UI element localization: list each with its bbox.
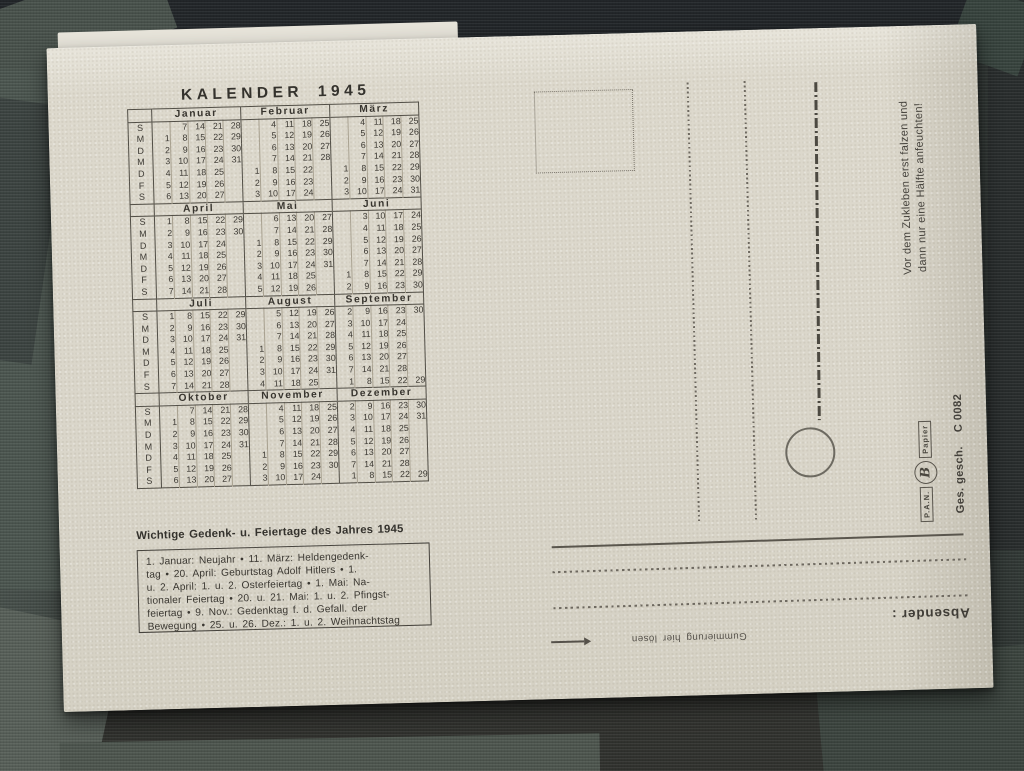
registration-note: Ges. gesch. C 0082 <box>942 390 977 517</box>
date-cell: 9 <box>262 248 280 260</box>
date-cell <box>159 405 177 418</box>
date-cell: 28 <box>223 119 241 132</box>
date-cell: 19 <box>194 357 212 369</box>
fold-dash-dot-line <box>814 82 820 420</box>
date-cell: 13 <box>179 475 197 488</box>
date-cell: 30 <box>403 173 421 185</box>
date-cell: 28 <box>315 224 333 236</box>
date-cell: 11 <box>263 272 281 284</box>
date-cell: 1 <box>334 270 352 282</box>
vertical-dotted-line <box>744 81 757 521</box>
date-cell: 15 <box>280 236 298 248</box>
date-cell <box>232 474 250 487</box>
calendar-title: KALENDER 1945 <box>166 81 386 105</box>
weekday-letter: D <box>129 145 153 157</box>
date-cell: 11 <box>171 168 189 180</box>
date-cell: 29 <box>315 235 333 247</box>
date-cell: 4 <box>158 346 176 358</box>
date-cell: 17 <box>188 156 206 168</box>
date-cell: 20 <box>372 352 390 364</box>
date-cell: 13 <box>176 369 194 381</box>
date-cell <box>316 270 334 282</box>
date-cell <box>243 214 261 227</box>
date-cell: 29 <box>228 309 246 322</box>
date-cell: 21 <box>372 363 390 375</box>
date-cell: 23 <box>211 321 229 333</box>
pan-logo-monogram: B <box>914 461 938 485</box>
date-cell: 7 <box>267 438 285 450</box>
date-cell: 13 <box>285 426 303 438</box>
date-cell: 1 <box>152 133 170 145</box>
date-cell: 16 <box>193 322 211 334</box>
date-cell: 26 <box>392 435 410 447</box>
date-cell: 29 <box>405 268 423 280</box>
weekday-letter: D <box>132 263 156 275</box>
calendar-corner-cell <box>133 298 157 311</box>
date-cell: 5 <box>266 415 284 427</box>
date-cell: 22 <box>384 162 402 174</box>
weekday-letter: M <box>131 228 155 240</box>
date-cell: 25 <box>391 423 409 435</box>
date-cell: 17 <box>193 333 211 345</box>
date-cell <box>229 344 247 356</box>
weekday-letter: M <box>129 157 153 169</box>
date-cell: 21 <box>194 380 212 393</box>
date-cell: 25 <box>319 401 337 414</box>
date-cell: 2 <box>157 323 175 335</box>
date-cell: 6 <box>154 191 172 204</box>
date-cell: 12 <box>179 463 197 475</box>
date-cell: 22 <box>206 132 224 144</box>
date-cell: 7 <box>336 364 354 376</box>
date-cell: 1 <box>157 311 175 324</box>
postcard: KALENDER 1945 JanuarFebruarMärzS71421284… <box>46 24 993 712</box>
date-cell: 16 <box>280 248 298 260</box>
date-cell: 12 <box>369 234 387 246</box>
date-cell: 26 <box>389 340 407 352</box>
date-cell: 22 <box>392 469 410 482</box>
date-cell: 26 <box>209 261 227 273</box>
weekday-letter: M <box>133 323 157 335</box>
date-cell: 5 <box>245 284 263 297</box>
date-cell: 7 <box>170 121 188 134</box>
date-cell: 7 <box>261 225 279 237</box>
date-cell <box>407 328 425 340</box>
date-cell: 12 <box>171 179 189 191</box>
date-cell: 4 <box>335 330 353 342</box>
date-cell: 23 <box>391 399 409 412</box>
address-line-dotted <box>552 558 966 573</box>
date-cell: 13 <box>279 213 297 226</box>
date-cell: 28 <box>212 379 230 392</box>
date-cell: 13 <box>354 352 372 364</box>
date-cell: 8 <box>354 376 372 389</box>
date-cell: 22 <box>208 214 226 227</box>
date-cell: 31 <box>224 155 242 167</box>
date-cell: 13 <box>356 447 374 459</box>
date-cell: 27 <box>313 141 331 153</box>
date-cell: 7 <box>351 258 369 270</box>
date-cell: 8 <box>260 165 278 177</box>
date-cell: 24 <box>211 333 229 345</box>
date-cell: 23 <box>208 227 226 239</box>
date-cell: 25 <box>389 328 407 340</box>
date-cell <box>314 187 332 200</box>
date-cell: 6 <box>158 369 176 381</box>
date-cell <box>246 308 264 321</box>
date-cell: 25 <box>404 221 422 233</box>
date-cell: 17 <box>283 366 301 378</box>
date-cell: 26 <box>401 127 419 139</box>
date-cell <box>330 140 348 152</box>
weekday-letter: S <box>130 192 154 205</box>
date-cell: 1 <box>339 471 357 484</box>
date-cell: 4 <box>259 118 277 131</box>
date-cell: 31 <box>409 411 427 423</box>
date-cell: 12 <box>277 130 295 142</box>
pan-paper-logo: P.A.N. B Papier <box>909 425 943 518</box>
date-cell: 22 <box>213 416 231 428</box>
date-cell: 6 <box>259 142 277 154</box>
date-cell: 24 <box>214 439 232 451</box>
date-cell: 17 <box>280 259 298 271</box>
date-cell: 14 <box>285 437 303 449</box>
date-cell: 13 <box>174 274 192 286</box>
date-cell: 11 <box>284 402 302 415</box>
date-cell: 19 <box>295 130 313 142</box>
date-cell: 15 <box>375 470 393 483</box>
date-cell <box>314 175 332 187</box>
date-cell: 23 <box>298 247 316 259</box>
weekday-letter: S <box>135 406 159 419</box>
date-cell: 20 <box>300 319 318 331</box>
date-cell <box>226 249 244 261</box>
date-cell: 26 <box>211 356 229 368</box>
date-cell: 28 <box>390 363 408 375</box>
date-cell: 14 <box>279 225 297 237</box>
date-cell <box>332 211 350 224</box>
date-cell: 11 <box>365 116 383 129</box>
date-cell: 3 <box>160 441 178 453</box>
date-cell: 7 <box>260 154 278 166</box>
date-cell: 27 <box>320 425 338 437</box>
date-cell: 22 <box>210 309 228 322</box>
date-cell: 3 <box>332 187 350 200</box>
date-cell: 1 <box>154 216 172 229</box>
date-cell: 24 <box>391 411 409 423</box>
date-cell: 28 <box>210 285 228 298</box>
date-cell: 23 <box>385 174 403 186</box>
date-cell: 12 <box>173 262 191 274</box>
weekday-letter: D <box>129 169 153 181</box>
date-cell: 12 <box>284 414 302 426</box>
date-cell: 12 <box>176 357 194 369</box>
date-cell: 12 <box>356 435 374 447</box>
date-cell: 21 <box>295 153 313 165</box>
date-cell: 3 <box>247 367 265 379</box>
weekday-letter: D <box>137 453 161 465</box>
weekday-letter: S <box>135 381 159 394</box>
weekday-letter: F <box>137 464 161 476</box>
date-cell: 9 <box>349 175 367 187</box>
date-cell: 19 <box>384 127 402 139</box>
weekday-letter: M <box>134 346 158 358</box>
date-cell: 25 <box>401 115 419 128</box>
date-cell <box>225 189 243 202</box>
date-cell: 25 <box>209 250 227 262</box>
date-cell: 30 <box>226 226 244 238</box>
date-cell: 16 <box>373 400 391 413</box>
date-cell: 22 <box>300 342 318 354</box>
date-cell <box>406 316 424 328</box>
address-line-solid <box>552 533 964 548</box>
date-cell: 14 <box>357 459 375 471</box>
calendar-corner-cell <box>135 393 159 406</box>
date-cell: 24 <box>304 472 322 485</box>
date-cell: 25 <box>211 344 229 356</box>
gumming-arrow-icon <box>551 637 591 646</box>
date-cell: 16 <box>367 174 385 186</box>
date-cell: 31 <box>403 185 421 198</box>
date-cell: 14 <box>177 380 195 393</box>
date-cell: 24 <box>388 317 406 329</box>
date-cell: 3 <box>250 473 268 486</box>
date-cell: 10 <box>262 260 280 272</box>
date-cell: 27 <box>389 351 407 363</box>
date-cell: 7 <box>177 405 195 418</box>
date-cell: 10 <box>175 334 193 346</box>
date-cell: 5 <box>158 357 176 369</box>
date-cell <box>330 117 348 130</box>
date-cell: 16 <box>278 176 296 188</box>
weekday-letter: S <box>133 311 157 324</box>
date-cell: 10 <box>171 156 189 168</box>
date-cell: 3 <box>245 260 263 272</box>
date-cell: 11 <box>368 222 386 234</box>
date-cell: 4 <box>248 378 266 391</box>
date-cell: 4 <box>161 452 179 464</box>
date-cell: 14 <box>282 331 300 343</box>
date-cell: 1 <box>244 237 262 249</box>
date-cell: 30 <box>405 279 423 292</box>
calendar-corner-cell <box>130 204 154 217</box>
date-cell: 8 <box>170 133 188 145</box>
date-cell: 30 <box>406 304 424 317</box>
date-cell: 13 <box>172 191 190 204</box>
date-cell <box>316 282 334 295</box>
date-cell: 2 <box>250 461 268 473</box>
date-cell: 4 <box>348 116 366 129</box>
date-cell: 20 <box>197 474 215 487</box>
weekday-letter: D <box>131 240 155 252</box>
date-cell: 9 <box>173 228 191 240</box>
date-cell: 9 <box>352 281 370 294</box>
date-cell: 10 <box>261 188 279 201</box>
arrow-head <box>584 637 591 645</box>
date-cell: 10 <box>353 318 371 330</box>
date-cell <box>321 471 339 484</box>
date-cell: 2 <box>334 281 352 294</box>
date-cell: 3 <box>335 318 353 330</box>
date-cell <box>241 119 259 132</box>
weekday-letter: F <box>129 180 153 192</box>
date-cell: 6 <box>351 246 369 258</box>
date-cell: 20 <box>295 141 313 153</box>
date-cell: 4 <box>245 272 263 284</box>
date-cell: 27 <box>404 245 422 257</box>
date-cell: 21 <box>297 224 315 236</box>
date-cell: 4 <box>350 223 368 235</box>
date-cell <box>244 226 262 238</box>
date-cell: 27 <box>215 474 233 487</box>
date-cell: 5 <box>338 436 356 448</box>
date-cell: 3 <box>155 240 173 252</box>
date-cell: 14 <box>277 153 295 165</box>
date-cell <box>224 166 242 178</box>
date-cell: 29 <box>223 131 241 143</box>
date-cell: 8 <box>177 417 195 429</box>
date-cell: 6 <box>264 320 282 332</box>
date-cell: 10 <box>368 210 386 223</box>
date-cell: 11 <box>276 118 294 131</box>
date-cell: 7 <box>264 331 282 343</box>
date-cell <box>229 356 247 368</box>
date-cell: 24 <box>403 209 421 222</box>
date-cell: 7 <box>159 381 177 394</box>
date-cell <box>410 457 428 469</box>
date-cell: 10 <box>268 473 286 486</box>
weekday-letter: M <box>131 252 155 264</box>
date-cell: 22 <box>387 268 405 280</box>
date-cell: 11 <box>173 251 191 263</box>
date-cell: 20 <box>194 368 212 380</box>
date-cell: 24 <box>301 365 319 377</box>
date-cell: 6 <box>336 353 354 365</box>
date-cell: 8 <box>357 470 375 483</box>
date-cell: 10 <box>355 412 373 424</box>
date-cell: 3 <box>243 189 261 202</box>
date-cell: 21 <box>192 285 210 298</box>
date-cell: 6 <box>261 213 279 226</box>
date-cell <box>152 121 170 134</box>
date-cell: 14 <box>188 120 206 133</box>
date-cell: 29 <box>410 469 428 482</box>
date-cell: 23 <box>300 354 318 366</box>
date-cell: 30 <box>315 247 333 259</box>
date-cell: 7 <box>349 151 367 163</box>
date-cell <box>242 154 260 166</box>
date-cell: 17 <box>196 440 214 452</box>
date-cell <box>248 403 266 416</box>
date-cell: 22 <box>297 236 315 248</box>
date-cell: 9 <box>265 355 283 367</box>
date-cell: 30 <box>408 399 426 412</box>
date-cell: 31 <box>319 365 337 377</box>
date-cell <box>241 131 259 143</box>
date-cell: 6 <box>161 475 179 488</box>
registration-code: C 0082 <box>952 394 965 433</box>
date-cell: 28 <box>320 436 338 448</box>
date-cell: 8 <box>349 163 367 175</box>
date-cell <box>230 367 248 379</box>
date-cell: 30 <box>318 353 336 365</box>
date-cell: 1 <box>337 376 355 389</box>
date-cell <box>333 235 351 247</box>
date-cell: 29 <box>231 416 249 428</box>
date-cell: 18 <box>371 329 389 341</box>
date-cell: 11 <box>353 329 371 341</box>
date-cell: 9 <box>268 461 286 473</box>
arrow-shaft <box>551 640 584 642</box>
date-cell: 18 <box>383 115 401 128</box>
date-cell: 19 <box>189 179 207 191</box>
date-cell: 7 <box>339 459 357 471</box>
date-cell: 20 <box>302 425 320 437</box>
date-cell: 24 <box>206 155 224 167</box>
date-cell <box>330 129 348 141</box>
date-cell: 5 <box>336 341 354 353</box>
date-cell: 16 <box>370 305 388 318</box>
date-cell: 5 <box>156 263 174 275</box>
date-cell: 17 <box>373 412 391 424</box>
date-cell <box>407 363 425 375</box>
date-cell <box>225 178 243 190</box>
date-cell: 17 <box>371 317 389 329</box>
date-cell: 4 <box>155 251 173 263</box>
date-cell: 29 <box>226 214 244 227</box>
date-cell <box>227 272 245 284</box>
date-cell: 16 <box>283 354 301 366</box>
date-cell <box>230 379 248 392</box>
date-cell: 21 <box>374 458 392 470</box>
date-cell: 16 <box>190 227 208 239</box>
calendar-corner-cell <box>128 109 152 122</box>
date-cell: 12 <box>366 128 384 140</box>
date-cell: 18 <box>373 423 391 435</box>
date-cell: 29 <box>321 448 339 460</box>
date-cell: 17 <box>286 472 304 485</box>
date-cell: 21 <box>384 150 402 162</box>
date-cell: 28 <box>318 330 336 342</box>
weekday-letter: M <box>136 441 160 453</box>
date-cell: 18 <box>196 451 214 463</box>
date-cell: 17 <box>386 210 404 223</box>
date-cell: 15 <box>195 416 213 428</box>
date-cell: 5 <box>161 464 179 476</box>
date-cell: 25 <box>207 167 225 179</box>
date-cell: 8 <box>267 449 285 461</box>
date-cell: 8 <box>352 269 370 281</box>
date-cell: 3 <box>153 156 171 168</box>
date-cell: 18 <box>191 250 209 262</box>
date-cell: 7 <box>156 286 174 299</box>
date-cell <box>334 258 352 270</box>
date-cell: 11 <box>265 378 283 391</box>
date-cell: 17 <box>367 186 385 199</box>
date-cell <box>333 223 351 235</box>
date-cell: 2 <box>244 249 262 261</box>
date-cell: 9 <box>178 429 196 441</box>
date-cell: 29 <box>402 162 420 174</box>
date-cell <box>232 462 250 474</box>
date-cell <box>407 351 425 363</box>
date-cell: 27 <box>207 190 225 203</box>
date-cell: 8 <box>265 343 283 355</box>
date-cell: 18 <box>283 377 301 390</box>
date-cell <box>313 164 331 176</box>
weekday-letter: D <box>134 335 158 347</box>
date-cell: 23 <box>296 176 314 188</box>
